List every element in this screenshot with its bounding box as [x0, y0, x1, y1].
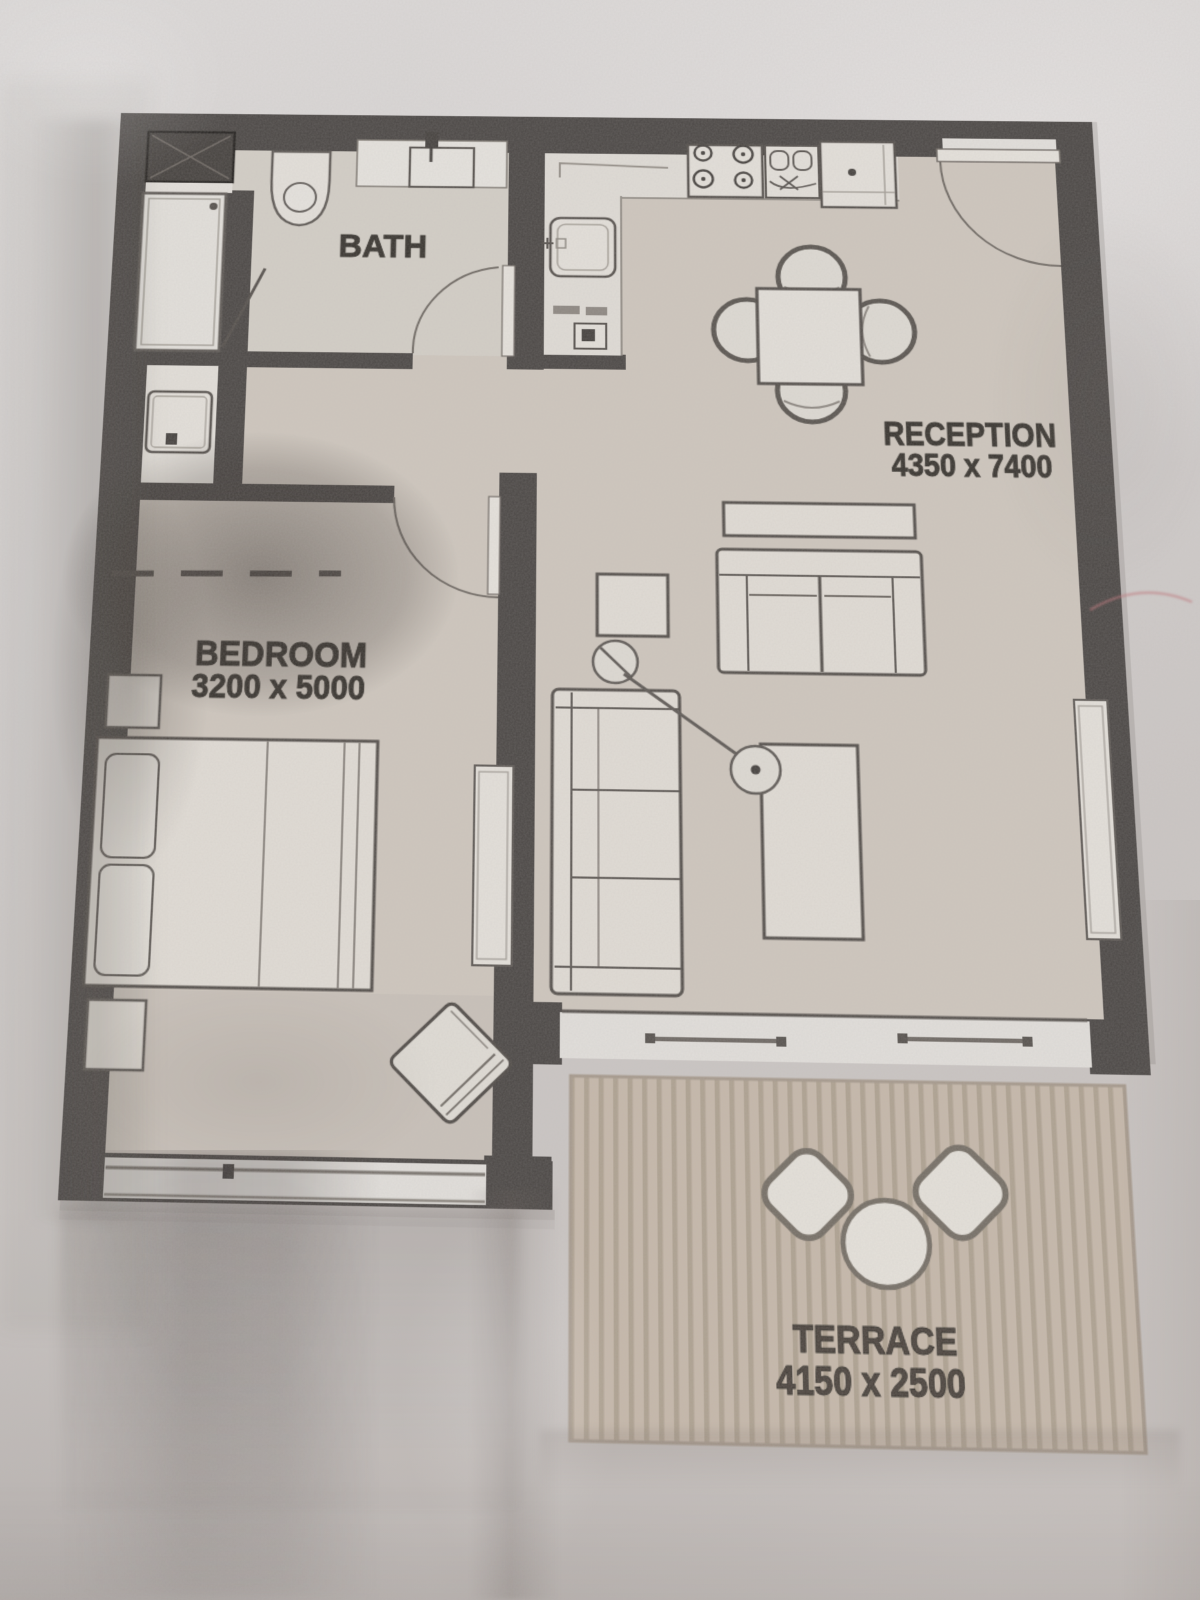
svg-text:4150 x 2500: 4150 x 2500 [776, 1357, 967, 1407]
svg-text:BATH: BATH [338, 228, 428, 264]
svg-text:TERRACE: TERRACE [792, 1315, 958, 1364]
svg-text:3200 x 5000: 3200 x 5000 [191, 666, 366, 708]
svg-text:4350 x 7400: 4350 x 7400 [891, 446, 1054, 485]
